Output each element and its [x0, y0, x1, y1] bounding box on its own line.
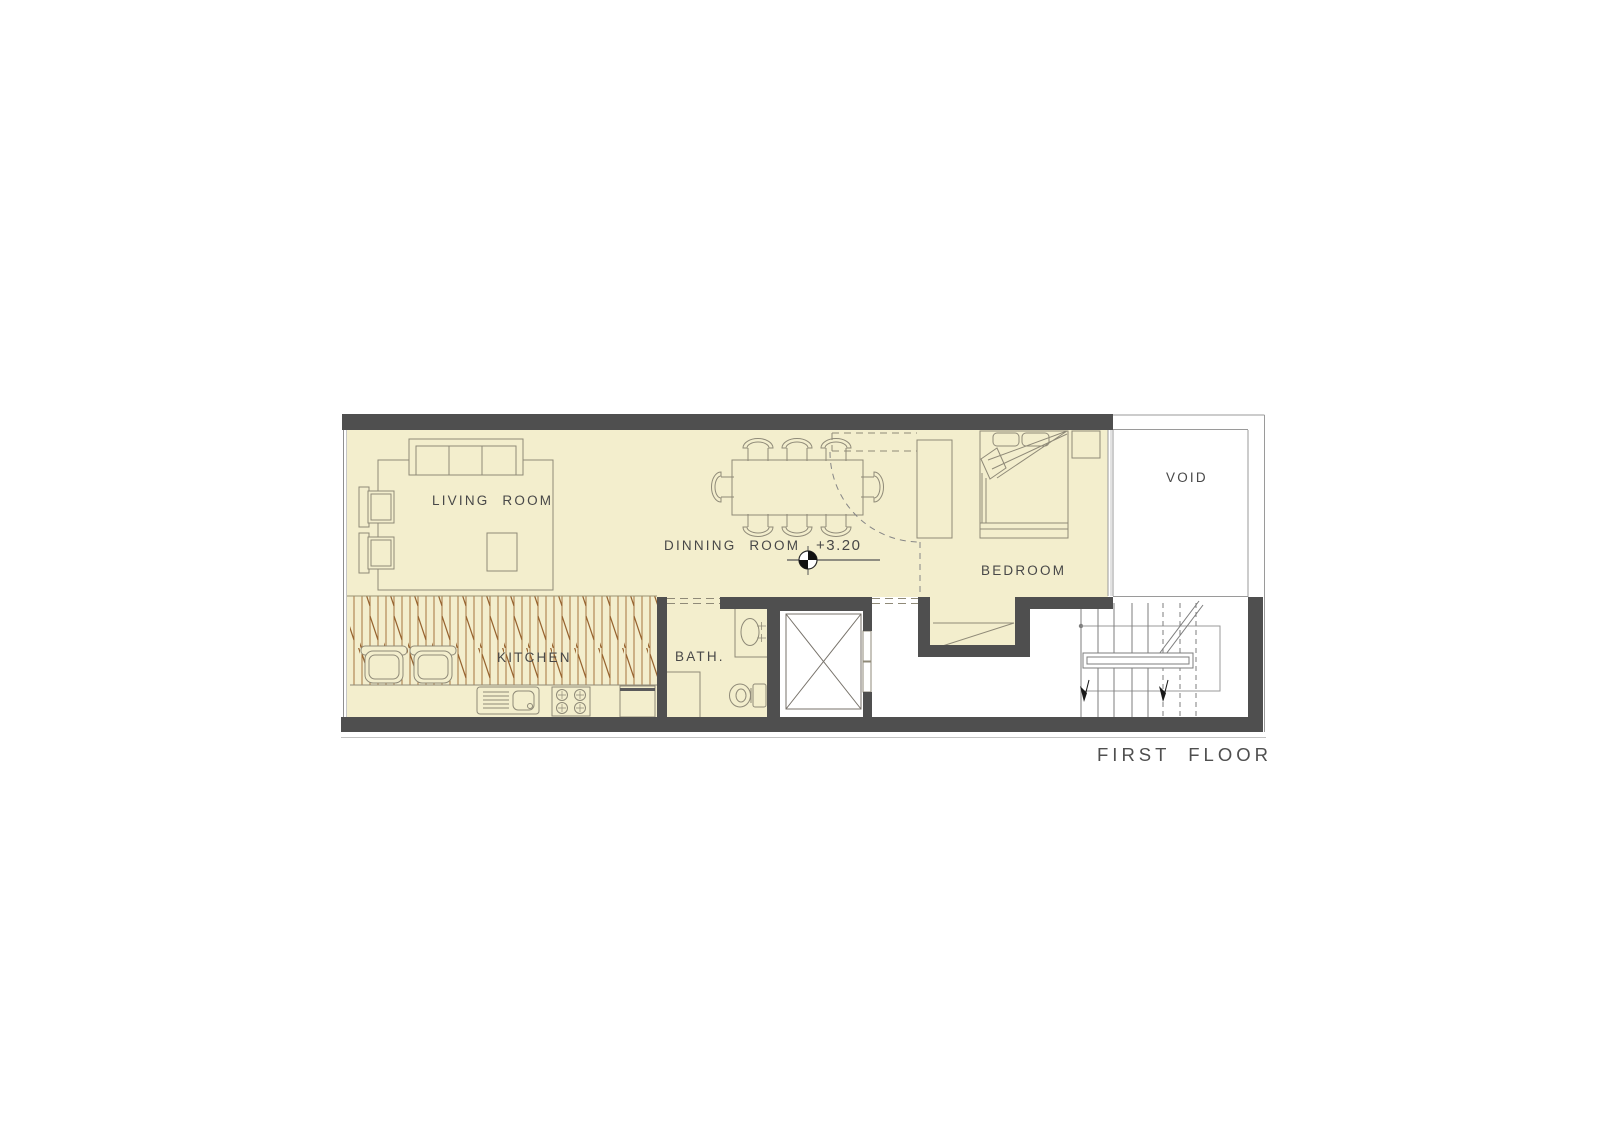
wall-niche-bottom — [918, 645, 1030, 657]
wall-elevator-right — [863, 611, 872, 631]
coffee-table — [487, 533, 517, 571]
room-label-kitchen: KITCHEN — [497, 651, 572, 665]
bedroom-void-window — [1108, 430, 1111, 596]
void-outline — [1113, 415, 1265, 732]
wall-bottom — [341, 717, 1263, 732]
sofa — [409, 439, 523, 475]
handrail — [1083, 653, 1193, 668]
elevator — [780, 609, 871, 717]
wall-elevator-top — [780, 597, 872, 611]
armchair — [359, 487, 394, 527]
elevator-door-panel — [863, 631, 871, 661]
kitchen-sink — [477, 687, 539, 714]
wall-stair-right — [1248, 597, 1263, 732]
wall-kitchen-bath — [657, 597, 667, 717]
floor-plan-canvas: LIVING ROOM DINNING ROOM KITCHEN BATH. B… — [0, 0, 1600, 1131]
bar-stool — [410, 646, 456, 683]
bar-stool — [361, 646, 407, 683]
stove — [552, 687, 590, 716]
staircase — [1079, 601, 1220, 717]
level-marker-value: +3.20 — [816, 538, 861, 553]
armchair — [359, 533, 394, 573]
room-label-bath: BATH. — [675, 650, 725, 664]
wall-top — [342, 414, 1113, 430]
wall-niche-right — [1015, 597, 1030, 657]
drawing-title: FIRST FLOOR — [1097, 746, 1272, 765]
dining-table — [732, 460, 863, 515]
room-label-void: VOID — [1166, 471, 1208, 485]
fridge — [620, 686, 655, 717]
wall-bedroom-bottom — [1030, 597, 1113, 609]
room-label-bedroom: BEDROOM — [981, 564, 1066, 578]
wall-elevator-right — [863, 692, 872, 717]
room-label-dining: DINNING ROOM — [664, 539, 800, 553]
hall-threshold — [872, 599, 918, 604]
room-label-living: LIVING ROOM — [432, 494, 553, 508]
floor-plan-drawing — [0, 0, 1600, 1131]
window-left — [344, 430, 347, 717]
wall-elevator-left — [767, 597, 780, 717]
elevator-door-panel — [863, 662, 871, 692]
